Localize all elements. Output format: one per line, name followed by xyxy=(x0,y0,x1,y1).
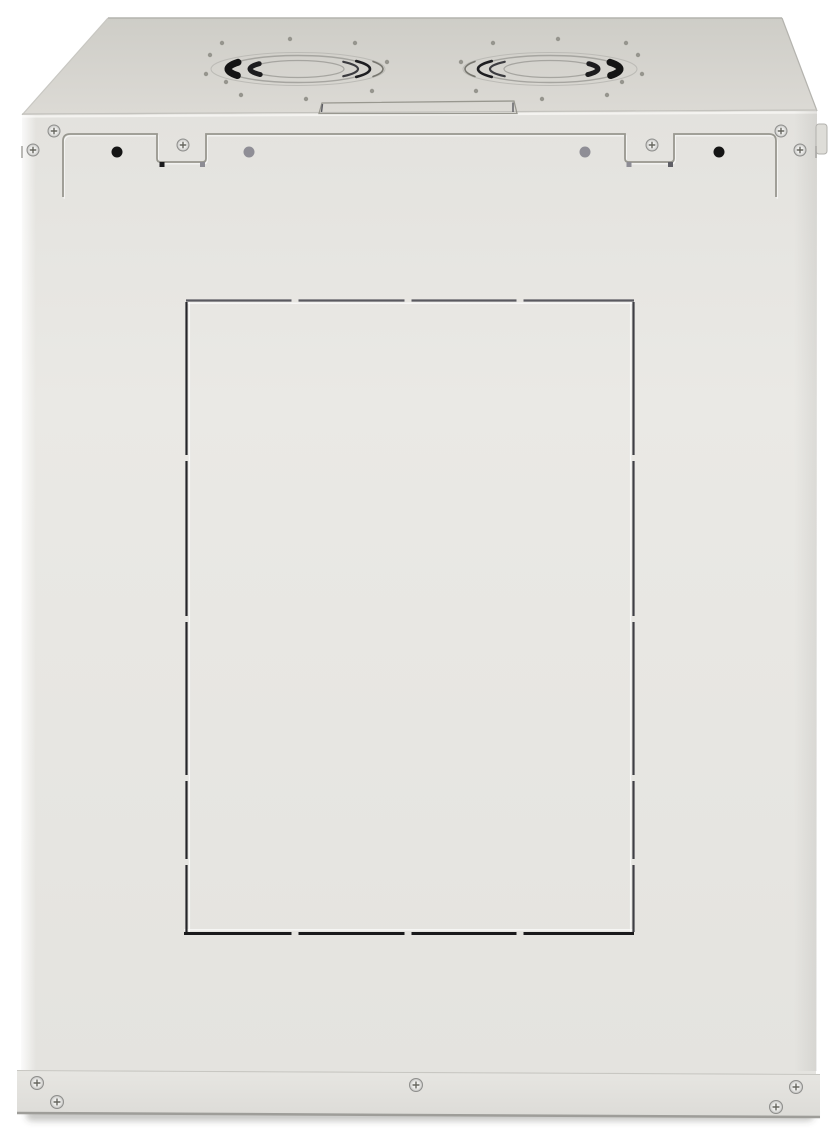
screw-bottom xyxy=(31,1077,44,1090)
fan-screw-hole xyxy=(385,60,389,64)
latch-square xyxy=(160,162,165,167)
screw-top_strip xyxy=(177,139,189,151)
cabinet-product-photo xyxy=(0,0,837,1143)
fan-screw-hole xyxy=(624,41,628,45)
screw-top_strip xyxy=(48,125,60,137)
cable-entry-tick-left xyxy=(322,104,323,112)
fan-screw-hole xyxy=(640,72,644,76)
fan-screw-hole xyxy=(370,89,374,93)
fan-screw-hole xyxy=(491,41,495,45)
screw-bottom xyxy=(410,1079,423,1092)
latch-square xyxy=(200,162,205,167)
hinge-nub xyxy=(816,124,827,154)
fan-screw-hole xyxy=(540,97,544,101)
fan-screw-hole xyxy=(220,41,224,45)
fan-screw-hole xyxy=(474,89,478,93)
bottom-flange xyxy=(17,1070,820,1118)
fan-screw-hole xyxy=(239,93,243,97)
fan-screw-hole xyxy=(208,53,212,57)
fan-screw-hole xyxy=(459,60,463,64)
fan-screw-hole xyxy=(304,97,308,101)
fan-screw-hole xyxy=(204,72,208,76)
top-panel-face xyxy=(22,18,817,115)
screw-top_strip xyxy=(27,144,39,156)
scene-root xyxy=(17,18,827,1121)
fan-screw-hole xyxy=(288,37,292,41)
screw-top_strip xyxy=(775,125,787,137)
mounting-hole-black xyxy=(112,147,123,158)
mounting-hole-gray xyxy=(580,147,591,158)
fan-screw-hole xyxy=(224,80,228,84)
screw-bottom xyxy=(51,1096,64,1109)
latch-square xyxy=(668,162,673,167)
screw-top_strip xyxy=(646,139,658,151)
mounting-hole-gray xyxy=(244,147,255,158)
fan-screw-hole xyxy=(556,37,560,41)
fan-screw-hole xyxy=(620,80,624,84)
cabinet-rear-view xyxy=(0,0,837,1143)
right-edge-shade xyxy=(794,111,817,1071)
screw-bottom xyxy=(770,1101,783,1114)
fan-screw-hole xyxy=(353,41,357,45)
fan-screw-hole xyxy=(636,53,640,57)
left-edge-highlight xyxy=(21,115,36,1071)
screw-bottom xyxy=(790,1081,803,1094)
mounting-hole-black xyxy=(714,147,725,158)
fan-screw-hole xyxy=(605,93,609,97)
latch-square xyxy=(627,162,632,167)
screw-top_strip xyxy=(794,144,806,156)
